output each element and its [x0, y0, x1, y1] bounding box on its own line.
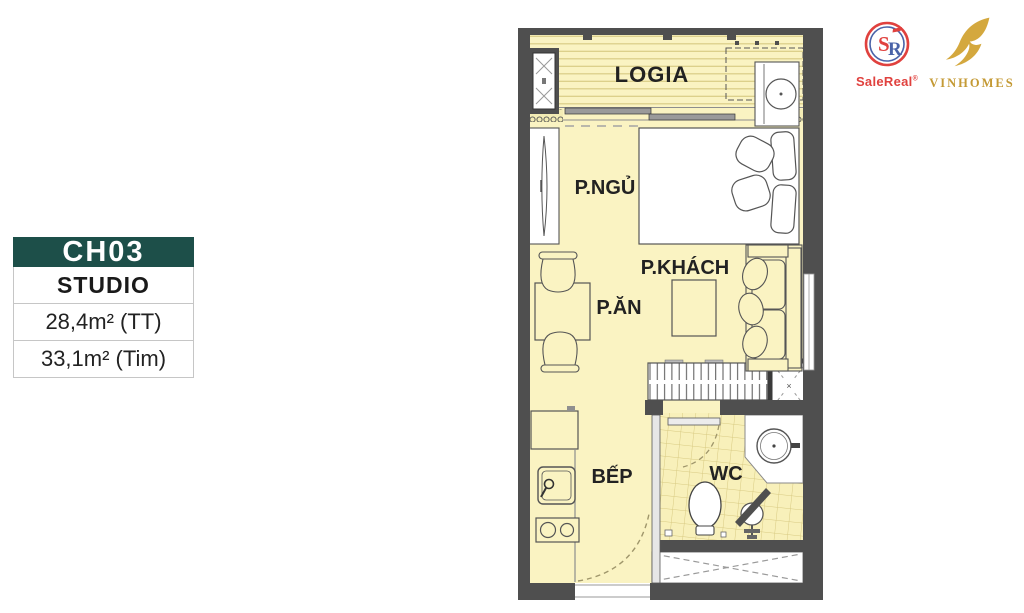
- salereal-wordmark: SaleReal®: [850, 74, 924, 89]
- room-label-living: P.KHÁCH: [641, 256, 730, 279]
- bed: [639, 128, 799, 244]
- wc-door-leaf: [668, 418, 720, 425]
- unit-code: CH03: [13, 237, 194, 267]
- ac-unit: [529, 48, 559, 114]
- room-label-wc: WC: [709, 463, 742, 485]
- vinhomes-bird-icon: [943, 16, 1001, 70]
- entrance-door-opening: [575, 583, 650, 600]
- fridge-handle: [567, 406, 575, 411]
- dining-chair: [539, 252, 577, 292]
- wardrobe: [529, 128, 559, 244]
- salereal-logo: S R SaleReal®: [850, 20, 924, 89]
- floorplan-drawing: ×: [515, 22, 825, 602]
- toilet: [689, 482, 721, 528]
- floorplan: ×: [515, 22, 825, 602]
- sofa: [735, 245, 802, 371]
- unit-area-net: 28,4m² (TT): [13, 304, 194, 341]
- vinhomes-logo: VINHOMES: [926, 16, 1018, 91]
- coffee-table: [672, 280, 716, 336]
- basin-faucet: [791, 443, 800, 448]
- room-label-logia: LOGIA: [615, 62, 690, 87]
- living-window: [804, 274, 814, 370]
- unit-type: STUDIO: [13, 267, 194, 304]
- svg-text:R: R: [888, 39, 902, 60]
- salereal-monogram-icon: S R: [863, 20, 911, 68]
- fridge: [531, 411, 578, 449]
- dining-chair: [541, 332, 579, 372]
- cooktop: [536, 518, 579, 542]
- unit-area-gross: 33,1m² (Tim): [13, 341, 194, 378]
- unit-info-card: CH03 STUDIO 28,4m² (TT) 33,1m² (Tim): [13, 237, 194, 378]
- ac-ledge: [652, 552, 803, 583]
- svg-text:×: ×: [786, 381, 791, 391]
- room-label-kitchen: BẾP: [591, 465, 632, 488]
- kitchen-sink: [538, 467, 575, 504]
- room-label-bedroom: P.NGỦ: [575, 175, 636, 199]
- room-label-dining: P.ĂN: [596, 296, 641, 319]
- vinhomes-wordmark: VINHOMES: [926, 76, 1018, 91]
